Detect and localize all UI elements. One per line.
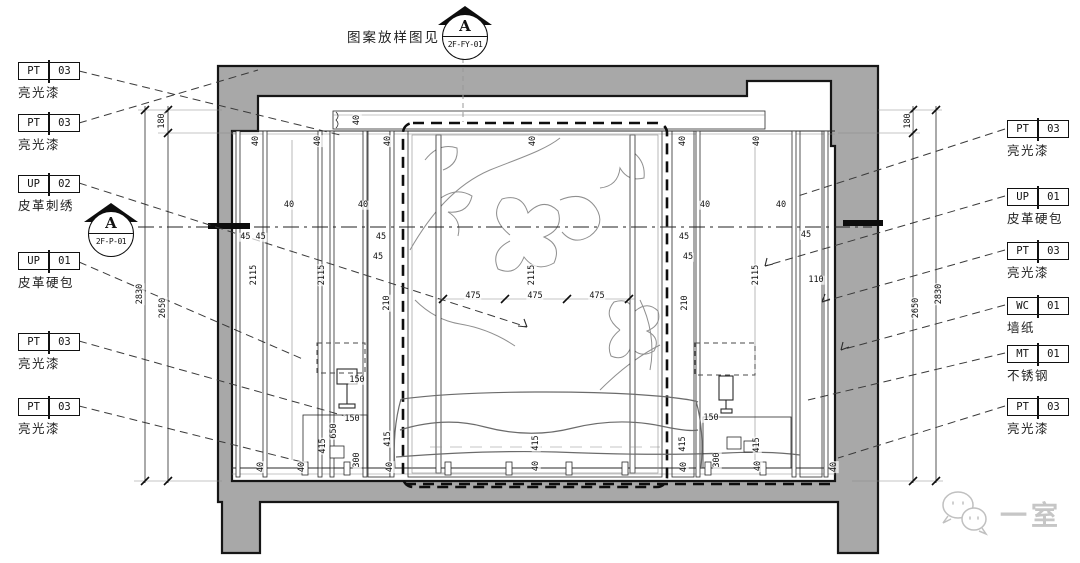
material-number: 01 [50,253,79,269]
wall-paneling [232,131,835,477]
callout-pt03-r3: PT03 亮光漆 [1007,398,1069,437]
callout-divider [1037,396,1039,419]
left-nightstand [303,343,367,468]
elevation-drawing-canvas: 图案放样图见 A 2F-FY-01 A 2F-P-01 PT03 亮光漆 PT0… [0,0,1080,563]
callout-divider [1037,343,1039,366]
watermark-logo: 一室 [938,486,1062,540]
section-marker-left: A 2F-P-01 [81,203,141,257]
textured-strip-wall [800,131,822,477]
callout-wc01: WC01 墙纸 [1007,297,1069,336]
centerline [138,220,883,229]
material-number: 03 [50,334,79,350]
artwork-dashed [695,343,755,375]
callout-pt03-2: PT03 亮光漆 [18,114,80,153]
material-code: PT [19,115,48,131]
material-code: MT [1008,346,1037,362]
callout-pt03-3: PT03 亮光漆 [18,333,80,372]
callout-pt03-4: PT03 亮光漆 [18,398,80,437]
material-name: 亮光漆 [1007,418,1069,437]
material-number: 01 [1039,189,1068,205]
callout-pt03-1: PT03 亮光漆 [18,62,80,101]
textured-strip-right [672,131,694,477]
material-code: UP [1008,189,1037,205]
material-number: 03 [1039,399,1068,415]
arrowhead [765,258,773,266]
detail-marker-circle: A 2F-FY-01 [442,14,488,60]
callout-divider [1037,295,1039,318]
wall-structure [218,66,878,553]
material-code: PT [19,63,48,79]
material-name: 墙纸 [1007,317,1069,336]
material-number: 03 [50,115,79,131]
wechat-icon [938,486,992,540]
material-number: 03 [1039,121,1068,137]
material-number: 02 [50,176,79,192]
table-lamp [337,369,357,408]
material-name: 亮光漆 [18,418,80,437]
callout-divider [1037,118,1039,141]
callout-divider [48,60,50,83]
detail-marker-top: A 2F-FY-01 [435,6,495,60]
textured-strip-left [368,131,390,477]
material-number: 01 [1039,298,1068,314]
material-code: PT [19,399,48,415]
material-name: 亮光漆 [18,134,80,153]
material-name: 亮光漆 [18,82,80,101]
material-name: 皮革硬包 [1007,208,1069,227]
embroidery-panel [403,123,667,487]
callout-up02: UP02 皮革刺绣 [18,175,80,214]
callout-up01-right: UP01 皮革硬包 [1007,188,1069,227]
bed-outline [394,392,800,468]
arrowhead [518,319,527,327]
material-number: 01 [1039,346,1068,362]
watermark-text: 一室 [1000,494,1062,533]
material-number: 03 [1039,243,1068,259]
material-name: 亮光漆 [18,353,80,372]
feature-panel-dashed-border [403,123,667,487]
callout-up01-left: UP01 皮革硬包 [18,252,80,291]
callout-pt03-r1: PT03 亮光漆 [1007,120,1069,159]
material-code: PT [1008,399,1037,415]
callout-divider [1037,240,1039,263]
material-number: 03 [50,63,79,79]
material-name: 皮革刺绣 [18,195,80,214]
material-code: PT [19,334,48,350]
material-name: 亮光漆 [1007,262,1069,281]
material-code: UP [19,176,48,192]
marker-code: 2F-P-01 [89,234,133,249]
drawing-linework [0,0,1080,563]
material-code: WC [1008,298,1037,314]
callout-divider [48,112,50,135]
callout-divider [48,250,50,273]
pattern-layout-note: 图案放样图见 [347,26,440,46]
material-number: 03 [50,399,79,415]
right-nightstand [695,343,791,468]
callout-divider [48,173,50,196]
pattern-layout-note-text: 图案放样图见 [347,30,440,46]
floral-pattern [410,138,660,390]
callout-divider [48,331,50,354]
material-name: 不锈钢 [1007,365,1069,384]
material-code: PT [1008,243,1037,259]
callout-divider [48,396,50,419]
callout-divider [1037,186,1039,209]
marker-code: 2F-FY-01 [443,37,487,52]
callout-mt01: MT01 不锈钢 [1007,345,1069,384]
material-code: PT [1008,121,1037,137]
section-marker-circle: A 2F-P-01 [88,211,134,257]
material-name: 亮光漆 [1007,140,1069,159]
material-name: 皮革硬包 [18,272,80,291]
callout-pt03-r2: PT03 亮光漆 [1007,242,1069,281]
material-code: UP [19,253,48,269]
table-lamp [719,376,733,413]
